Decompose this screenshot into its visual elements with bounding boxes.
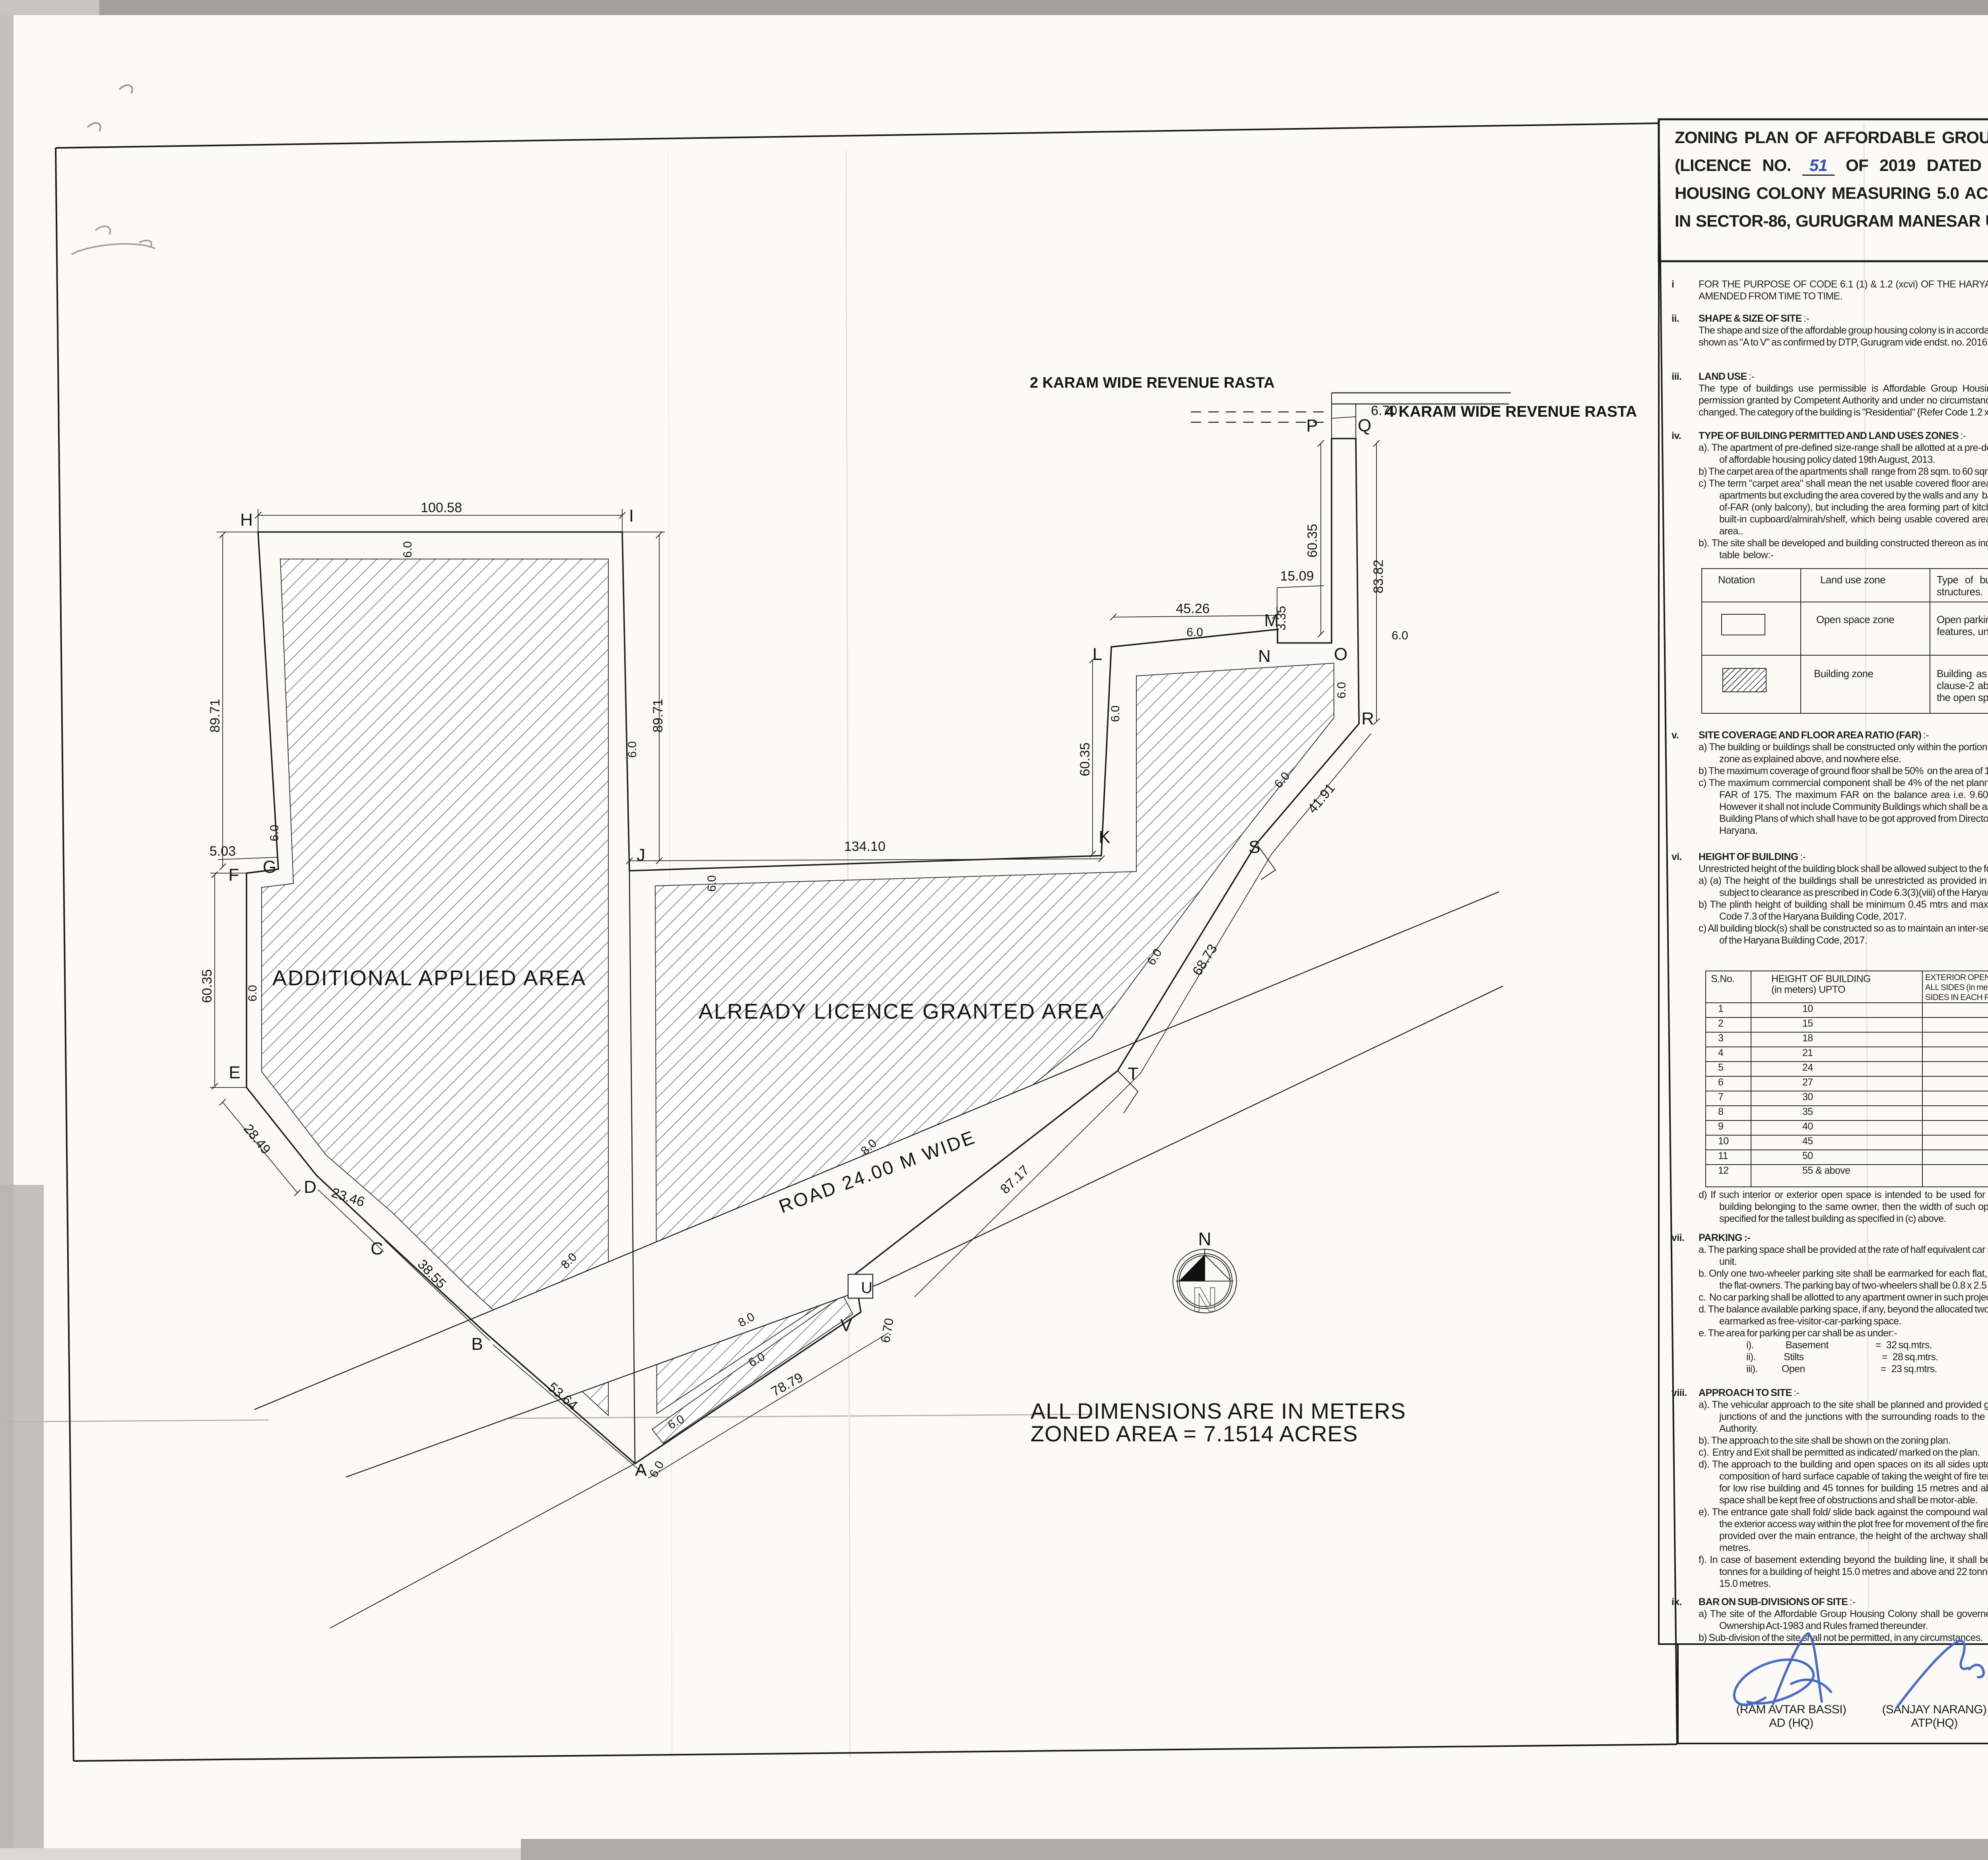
svg-text:6.0: 6.0 [647, 1459, 666, 1480]
svg-text:ALL DIMENSIONS ARE IN METERS: ALL DIMENSIONS ARE IN METERS [1031, 1398, 1406, 1423]
svg-text:M: M [1264, 611, 1279, 630]
svg-text:N: N [1198, 1229, 1211, 1249]
svg-text:60.35: 60.35 [200, 969, 215, 1003]
svg-text:5.03: 5.03 [210, 844, 236, 859]
svg-text:G: G [263, 857, 276, 877]
svg-text:45.26: 45.26 [1176, 601, 1209, 616]
svg-text:Q: Q [1358, 416, 1371, 435]
svg-text:K: K [1099, 827, 1110, 847]
svg-text:J: J [637, 845, 645, 865]
svg-text:134.10: 134.10 [844, 839, 885, 854]
svg-text:R: R [1361, 709, 1374, 728]
svg-text:41.91: 41.91 [1305, 781, 1338, 816]
svg-text:E: E [229, 1063, 240, 1082]
svg-text:6.0: 6.0 [1392, 629, 1408, 642]
svg-text:6.0: 6.0 [626, 741, 639, 758]
svg-text:F: F [229, 865, 239, 885]
svg-text:N: N [1192, 1281, 1217, 1319]
svg-text:28.49: 28.49 [241, 1121, 274, 1157]
svg-text:P: P [1306, 416, 1318, 435]
svg-text:C: C [371, 1239, 383, 1258]
svg-text:B: B [471, 1334, 483, 1354]
svg-text:6.0: 6.0 [1335, 682, 1348, 699]
svg-text:6.0: 6.0 [246, 985, 259, 1002]
svg-text:ZONED AREA = 7.1514 ACRES: ZONED AREA = 7.1514 ACRES [1031, 1421, 1358, 1446]
svg-text:15.09: 15.09 [1280, 569, 1314, 584]
svg-text:60.35: 60.35 [1077, 742, 1093, 776]
svg-text:ALREADY LICENCE GRANTED AREA: ALREADY LICENCE GRANTED AREA [699, 1000, 1105, 1023]
svg-text:H: H [240, 510, 253, 530]
svg-text:6.0: 6.0 [1186, 626, 1203, 639]
svg-text:78.79: 78.79 [769, 1370, 806, 1399]
svg-text:D: D [304, 1177, 316, 1197]
svg-text:6.0: 6.0 [401, 541, 414, 558]
svg-text:I: I [629, 506, 634, 526]
svg-text:A: A [635, 1460, 647, 1480]
svg-text:6.0: 6.0 [705, 875, 718, 892]
svg-text:89.71: 89.71 [208, 699, 223, 732]
svg-text:4 KARAM WIDE REVENUE RASTA: 4 KARAM WIDE REVENUE RASTA [1386, 403, 1637, 420]
svg-text:6.0: 6.0 [1109, 705, 1122, 722]
svg-text:68.73: 68.73 [1190, 942, 1220, 978]
svg-text:100.58: 100.58 [421, 500, 462, 515]
svg-text:V: V [840, 1316, 852, 1335]
svg-text:89.71: 89.71 [650, 699, 666, 732]
svg-text:ADDITIONAL APPLIED AREA: ADDITIONAL APPLIED AREA [272, 966, 586, 990]
svg-text:2 KARAM WIDE REVENUE RASTA: 2 KARAM WIDE REVENUE RASTA [1030, 375, 1275, 391]
svg-text:O: O [1334, 645, 1347, 664]
svg-text:6.0: 6.0 [268, 825, 281, 841]
svg-text:6.70: 6.70 [878, 1317, 896, 1344]
svg-text:T: T [1128, 1064, 1139, 1083]
svg-text:60.35: 60.35 [1305, 524, 1320, 557]
svg-text:L: L [1093, 645, 1102, 664]
svg-text:U: U [861, 1279, 873, 1297]
svg-text:N: N [1258, 647, 1271, 666]
svg-text:83.82: 83.82 [1371, 559, 1386, 593]
